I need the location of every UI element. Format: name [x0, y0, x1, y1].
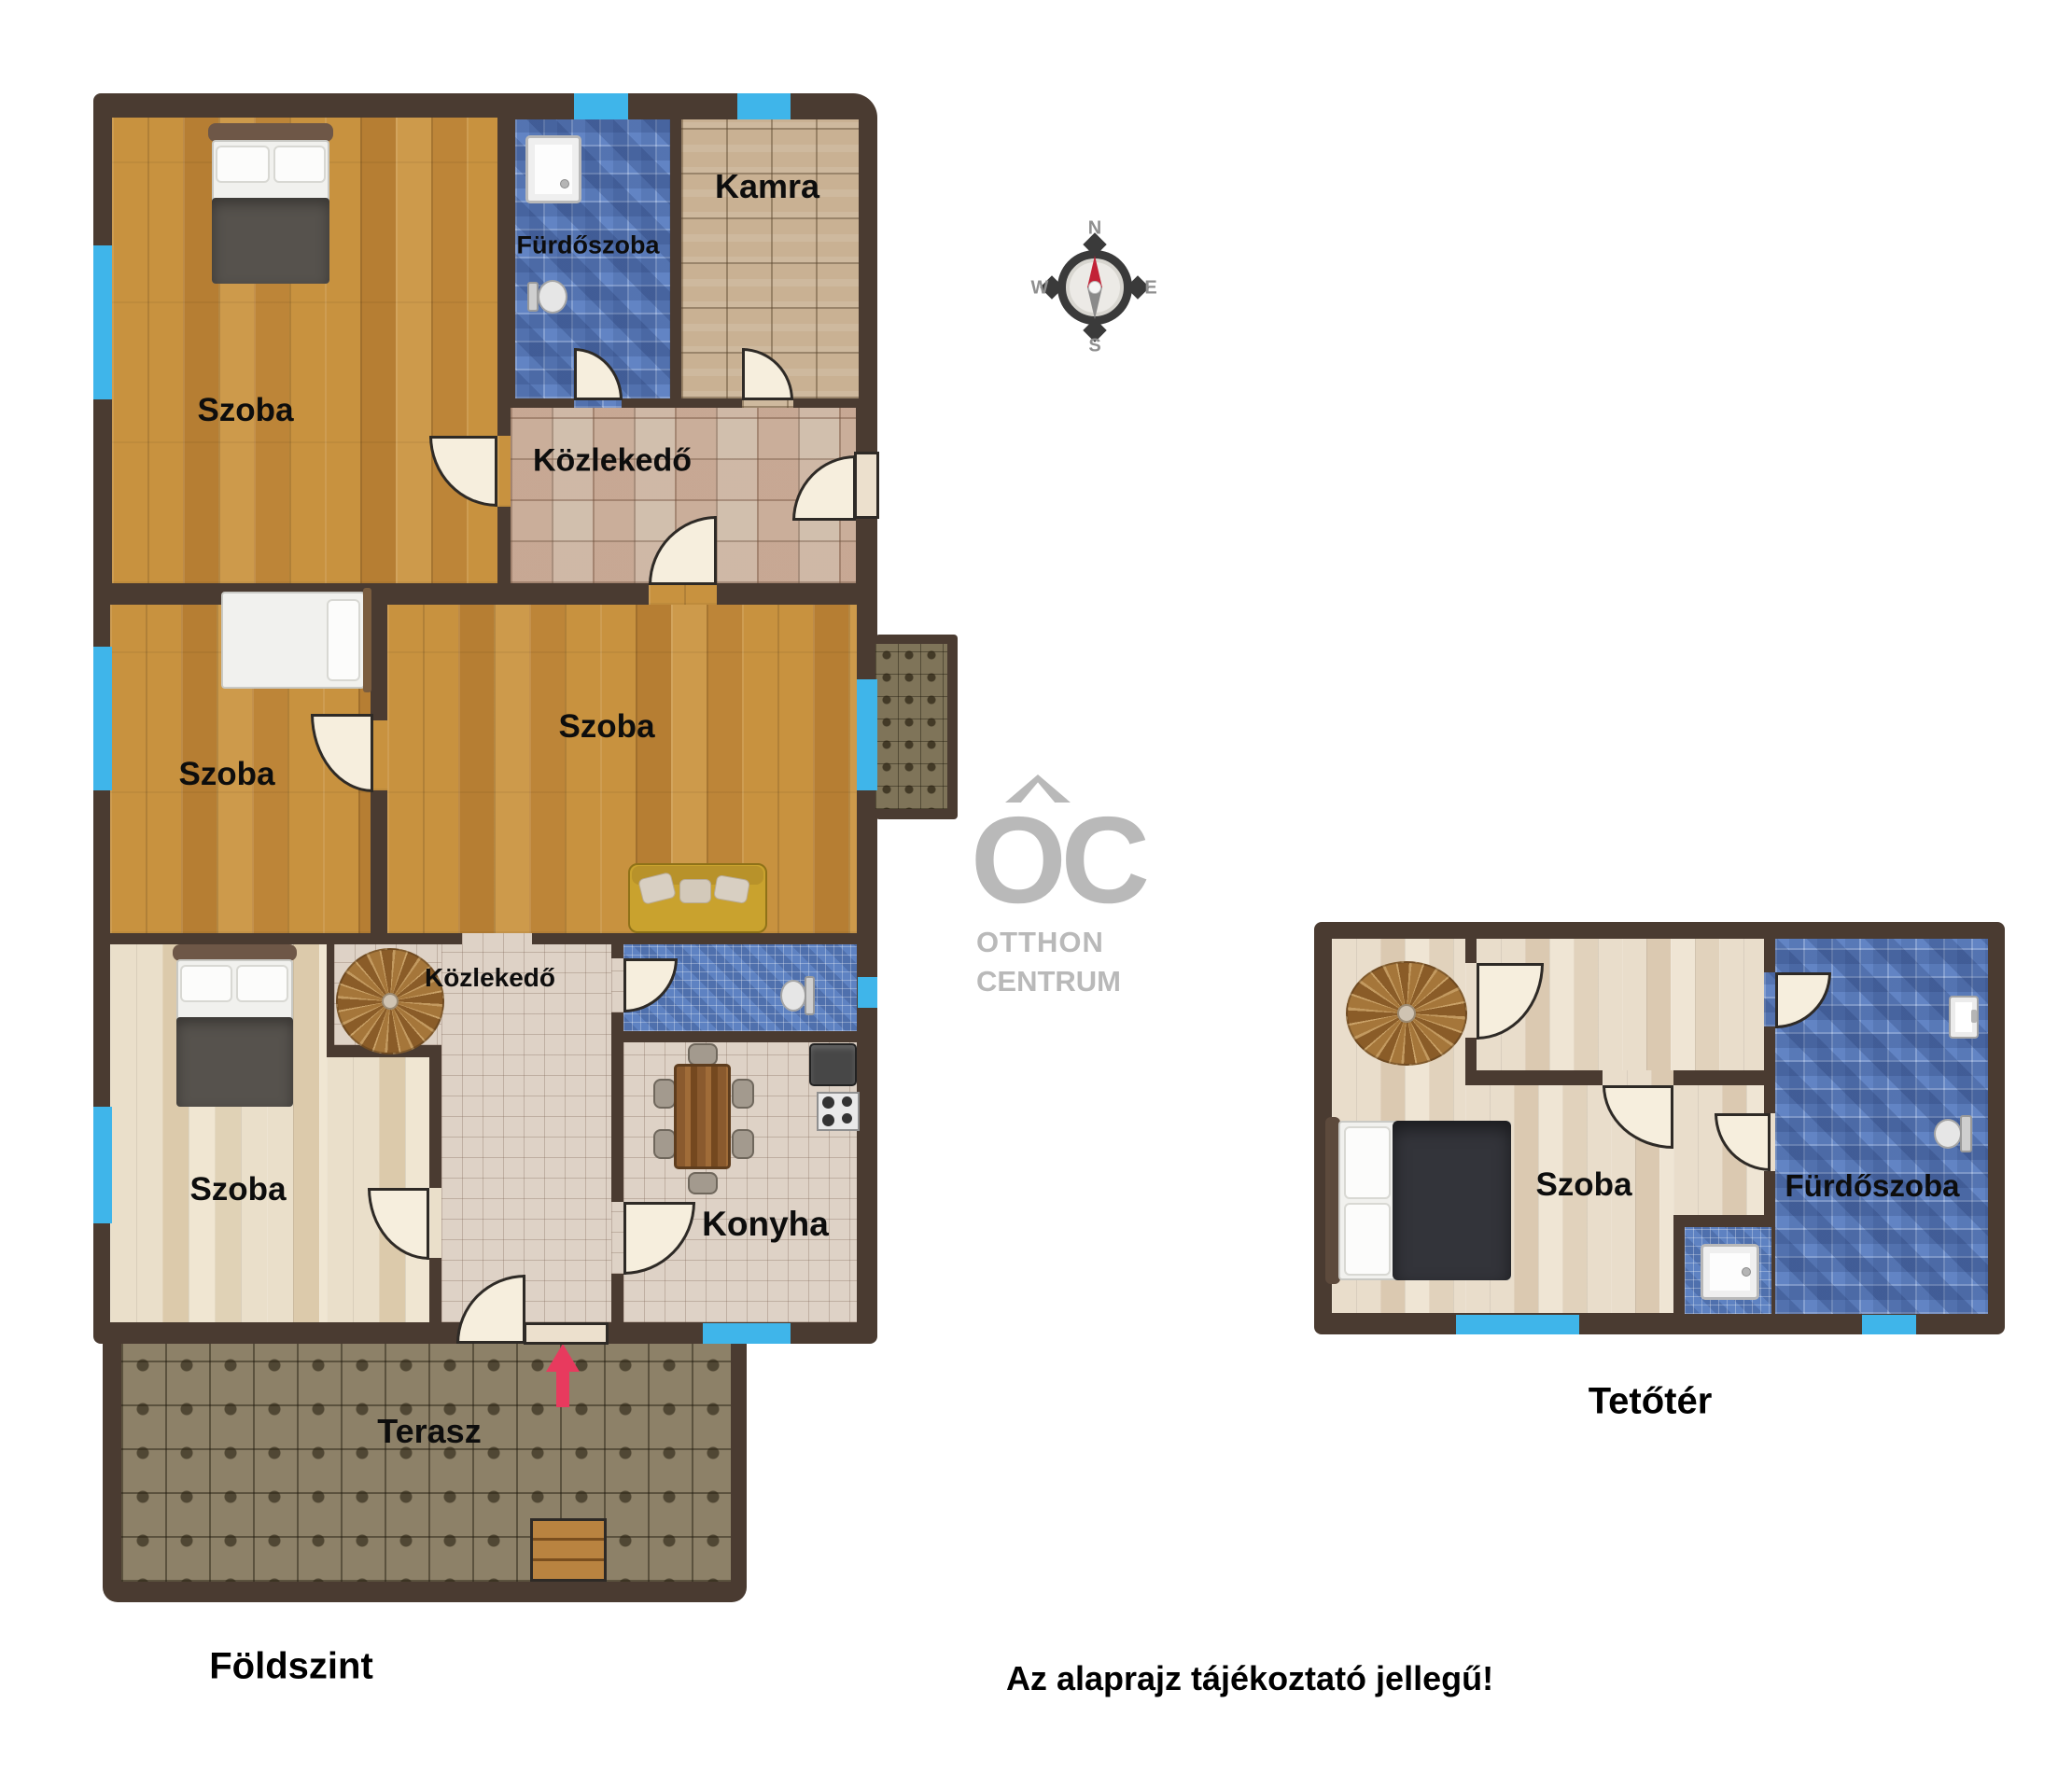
bed-headboard: [208, 123, 333, 142]
chair: [688, 1043, 718, 1066]
door-opening: [1465, 963, 1477, 1038]
compass-label-e: E: [1144, 278, 1156, 300]
room-label-kitchen: Konyha: [702, 1205, 829, 1244]
bed-pillow: [180, 965, 232, 1002]
entry-door-leaf: [524, 1322, 609, 1345]
terrace-steps: [530, 1518, 607, 1582]
window: [93, 1107, 112, 1223]
terrace-floor: [121, 1344, 731, 1582]
room-label-bathroom: Fürdőszoba: [517, 231, 660, 260]
spiral-staircase-hub: [1397, 1004, 1416, 1023]
compass-label-n: N: [1088, 218, 1101, 240]
entry-arrow-head-icon: [546, 1344, 580, 1372]
shower-tray: [525, 135, 581, 203]
chair: [732, 1129, 754, 1159]
bed-blanket: [1393, 1121, 1511, 1280]
toilet-bowl: [1934, 1119, 1962, 1149]
bed-blanket: [176, 1017, 293, 1107]
window: [1862, 1315, 1916, 1334]
room-label-bedroom-sw: Szoba: [189, 1171, 286, 1208]
sofa-cushion: [679, 879, 711, 903]
compass-icon: N E S W: [1022, 213, 1171, 362]
window: [93, 245, 112, 399]
door-opening: [1603, 1070, 1673, 1085]
room-label-attic-bathroom: Fürdőszoba: [1785, 1168, 1960, 1204]
bed-pillow: [216, 146, 270, 183]
window: [574, 93, 628, 119]
window: [737, 93, 791, 119]
stove-burner: [842, 1113, 852, 1124]
compass-hub: [1088, 281, 1101, 294]
entry-arrow-icon: [556, 1370, 569, 1407]
exterior-door-leaf: [854, 452, 879, 519]
door-opening: [649, 583, 717, 605]
stove-burner: [842, 1096, 852, 1107]
chair: [688, 1172, 718, 1194]
room-label-bedroom-center: Szoba: [558, 708, 654, 746]
chair: [732, 1079, 754, 1109]
room-label-bedroom-w: Szoba: [178, 756, 274, 793]
room-label-bedroom-nw: Szoba: [197, 392, 293, 429]
toilet-tank: [1960, 1115, 1972, 1152]
door-opening: [429, 1188, 441, 1258]
bed-headboard: [363, 588, 371, 692]
otthon-centrum-logo: OC OTTHON CENTRUM: [971, 771, 1111, 1004]
window: [857, 679, 877, 790]
stove-burner: [822, 1096, 834, 1109]
bed-pillow: [273, 146, 326, 183]
room-label-attic-bedroom: Szoba: [1535, 1166, 1631, 1204]
spiral-staircase-hub: [382, 993, 399, 1010]
window: [703, 1323, 791, 1344]
stove-burner: [822, 1114, 834, 1126]
shower-drain: [560, 179, 569, 188]
attic-title: Tetőtér: [1589, 1381, 1713, 1423]
compass-label-s: S: [1088, 336, 1100, 357]
room-label-terrace: Terasz: [377, 1412, 481, 1451]
chair: [653, 1129, 676, 1159]
door-opening: [611, 958, 623, 1012]
ground-floor-title: Földszint: [209, 1646, 373, 1688]
bed-blanket: [212, 198, 329, 284]
window: [1456, 1315, 1579, 1334]
door-opening: [497, 436, 511, 507]
shower-drain: [1742, 1267, 1751, 1277]
room-hallway-lower-floor: [441, 944, 611, 1322]
compass-label-w: W: [1031, 278, 1049, 300]
window: [93, 647, 112, 790]
room-bedroom-center-floor: [387, 605, 857, 933]
logo-line1: OTTHON: [976, 926, 1104, 959]
window: [858, 977, 877, 1008]
bed-pillow: [327, 599, 360, 681]
chair: [653, 1079, 676, 1109]
door-opening: [611, 1202, 623, 1274]
disclaimer-text: Az alaprajz tájékoztató jellegű!: [1006, 1659, 1493, 1698]
toilet-tank: [805, 976, 815, 1015]
fridge: [809, 1043, 857, 1086]
toilet-bowl: [780, 980, 806, 1012]
logo-line2: CENTRUM: [976, 965, 1121, 998]
bed-pillow: [1344, 1203, 1391, 1276]
room-label-pantry: Kamra: [715, 167, 819, 206]
floorplan-canvas: Szoba Fürdőszoba Kamra Közlekedő Szoba S…: [0, 0, 2072, 1773]
room-label-hallway-upper: Közlekedő: [533, 443, 692, 480]
bed-pillow: [236, 965, 288, 1002]
toilet-bowl: [538, 280, 567, 314]
dining-table: [674, 1064, 731, 1169]
bed-pillow: [1344, 1126, 1391, 1199]
room-label-hallway-lower: Közlekedő: [425, 963, 555, 993]
door-opening: [1764, 972, 1775, 1026]
sink-faucet: [1971, 1010, 1977, 1023]
porch-floor: [875, 644, 947, 809]
logo-monogram: OC: [971, 799, 1144, 922]
